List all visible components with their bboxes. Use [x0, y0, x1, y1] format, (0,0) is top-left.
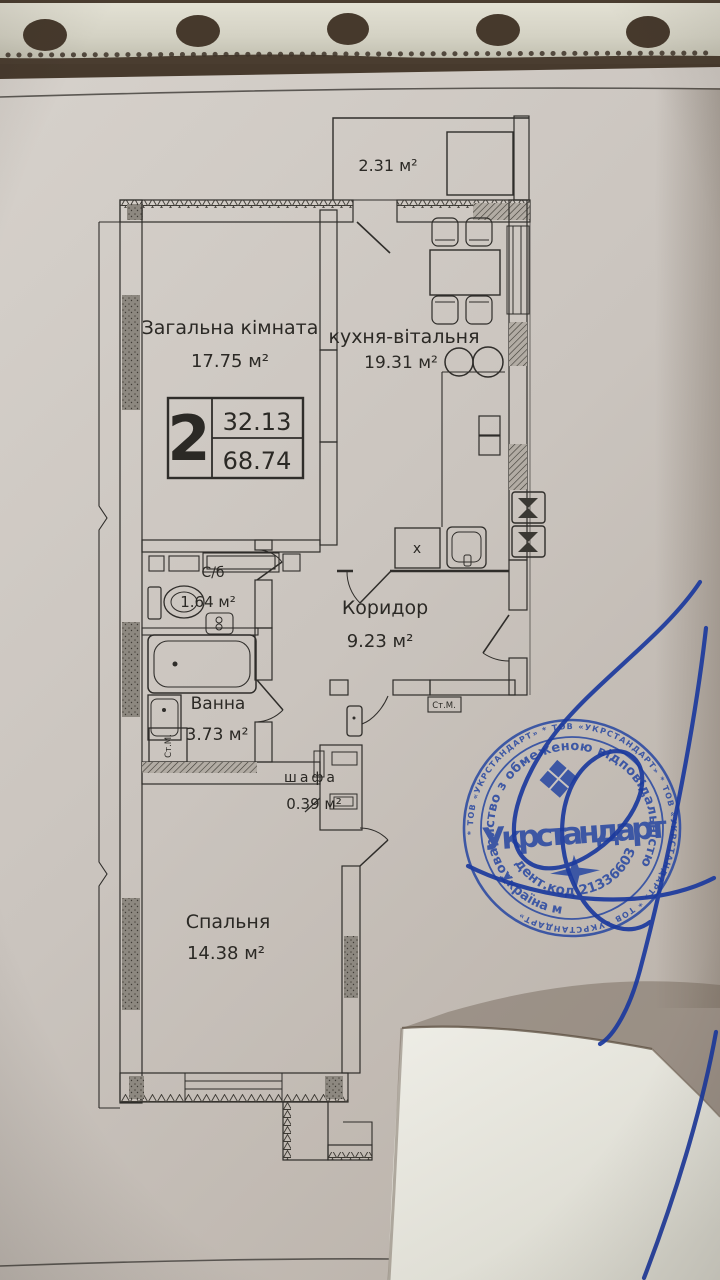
photo-floor-plan-document: 2.31 м² — [0, 0, 720, 1280]
photo-vignette — [0, 0, 720, 1280]
